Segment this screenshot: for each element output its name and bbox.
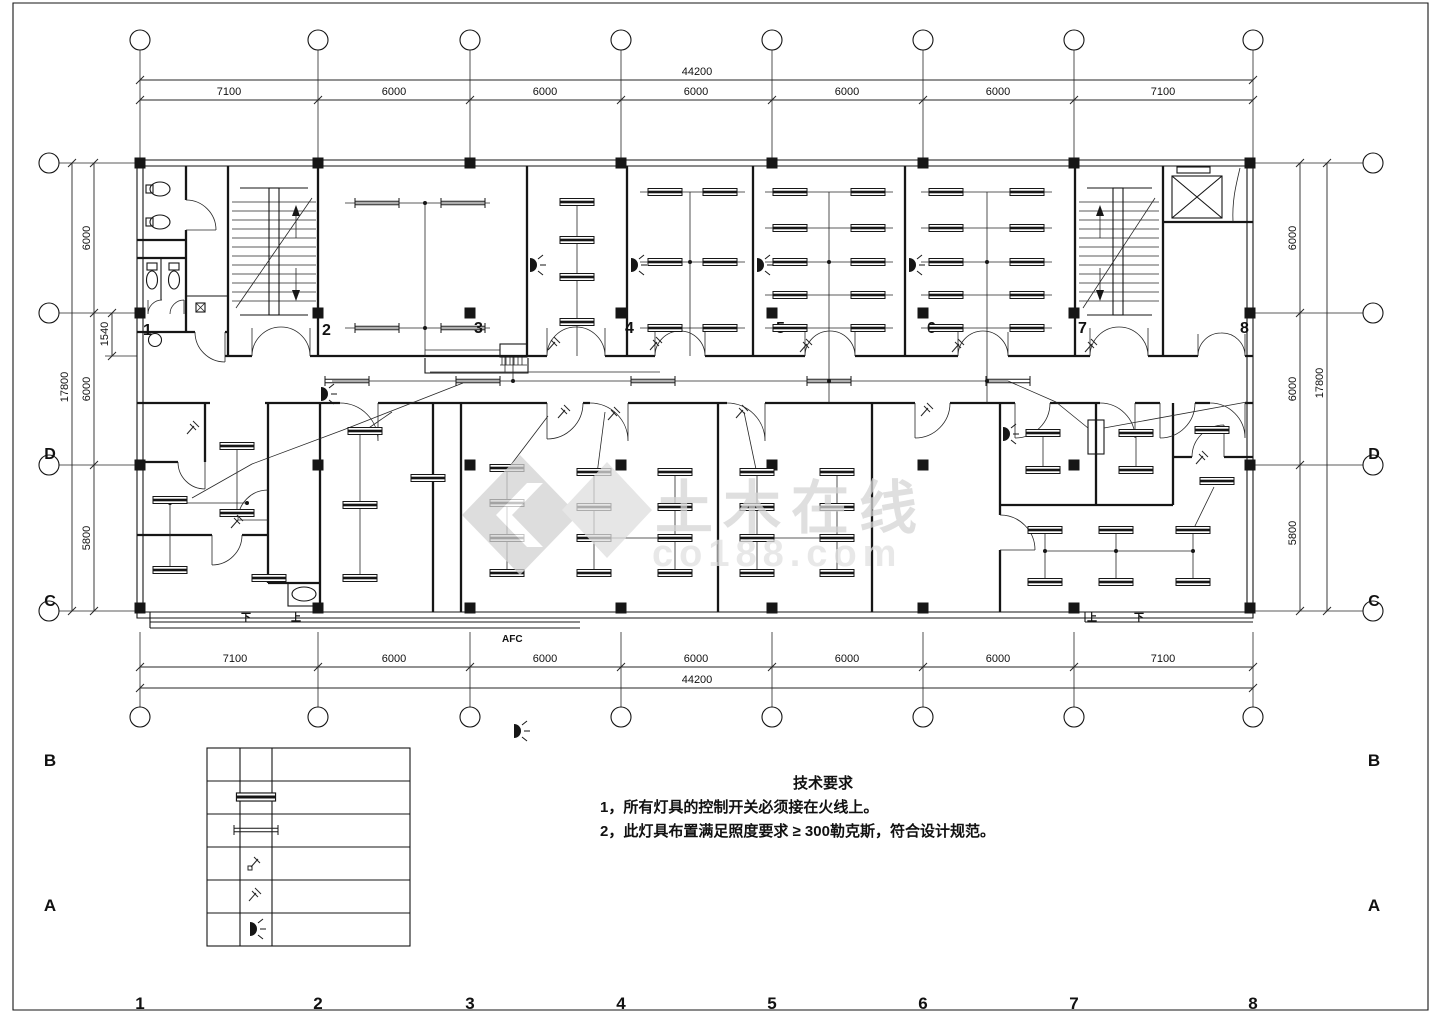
light-icon	[773, 189, 807, 196]
stair-up-label: 上	[291, 611, 301, 624]
axis-letter-c-right: C	[1368, 593, 1380, 610]
light-icon	[851, 325, 885, 332]
sheet-number: 1	[135, 994, 144, 1013]
grid-bubbles-right	[1363, 153, 1383, 621]
light-icon	[1010, 292, 1044, 299]
stair-down-label: 下	[1134, 612, 1144, 624]
distribution-board-icon	[500, 344, 527, 365]
sheet-letter: B	[44, 751, 56, 770]
dim-right-seg: 5800	[1287, 521, 1299, 545]
watermark: 土木在线 co188.com	[462, 455, 927, 575]
elevator-icon	[1163, 167, 1253, 222]
sheet-letter: A	[1368, 896, 1380, 915]
light-icon	[648, 189, 682, 196]
dim-bottom-seg: 6000	[986, 653, 1010, 665]
light-icon	[658, 469, 692, 476]
light-icon	[560, 237, 594, 244]
light-icon	[929, 225, 963, 232]
toilet-icon	[169, 263, 180, 289]
sheet-number: 3	[465, 994, 474, 1013]
axis-letter-d-right: D	[1368, 446, 1380, 463]
light-icon	[851, 189, 885, 196]
watermark-domain: co188.com	[652, 533, 902, 575]
panel-label: AFC	[502, 634, 523, 645]
notes-item-2: 2，此灯具布置满足照度要求 ≥ 300勒克斯，符合设计规范。	[600, 822, 995, 840]
wall-lamp-icon	[757, 255, 773, 275]
light-icon	[929, 189, 963, 196]
light-icon	[773, 259, 807, 266]
light-icon	[1119, 430, 1153, 437]
column-number: 8	[1240, 320, 1249, 337]
light-icon	[1028, 579, 1062, 586]
floor-drain-icon	[196, 303, 205, 312]
dim-left-total: 17800	[59, 372, 71, 403]
light-icon	[577, 570, 611, 577]
light-icon	[1010, 189, 1044, 196]
sheet-labels: B A B A 1 2 3 4 5 6 7 8	[44, 751, 1380, 1013]
light-icon	[1099, 527, 1133, 534]
dim-top-seg: 7100	[1151, 86, 1175, 98]
dim-bottom-seg: 7100	[1151, 653, 1175, 665]
grid-bubbles-top	[130, 30, 1263, 50]
light-icon	[1176, 579, 1210, 586]
light-icon	[560, 199, 594, 206]
double-tube-fluorescent-icon	[236, 793, 275, 801]
sheet-letter: A	[44, 896, 56, 915]
switch-icon	[921, 403, 933, 416]
urinal-icon	[146, 215, 170, 229]
light-icon	[1099, 579, 1133, 586]
drawing-sheet: 44200 7100 6000 6000 6000 6000 6000 7100…	[0, 0, 1440, 1020]
wall-lamp-icon	[321, 384, 337, 404]
light-icon	[773, 292, 807, 299]
axis-letter-c-left: C	[44, 593, 56, 610]
light-icon	[773, 325, 807, 332]
switch-icon	[558, 405, 570, 418]
wall-lamp-icon	[250, 919, 266, 939]
dim-top-total: 44200	[682, 66, 713, 78]
watermark-logo-icon	[462, 455, 652, 575]
light-icon	[1010, 259, 1044, 266]
single-pole-switch-icon	[248, 857, 260, 870]
sheet-number: 8	[1248, 994, 1257, 1013]
light-icon	[851, 292, 885, 299]
light-icon	[648, 325, 682, 332]
light-icon	[348, 428, 382, 435]
sheet-number: 7	[1069, 994, 1078, 1013]
light-icon	[820, 469, 854, 476]
light-icon	[1010, 325, 1044, 332]
dim-right-total: 17800	[1314, 368, 1326, 399]
light-icon	[703, 189, 737, 196]
dim-bottom-seg: 6000	[382, 653, 406, 665]
light-icon	[343, 575, 377, 582]
wall-lamp-icon	[514, 721, 530, 741]
dim-top-seg: 7100	[217, 86, 241, 98]
dim-left-seg: 5800	[81, 526, 93, 550]
dim-top-seg: 6000	[533, 86, 557, 98]
light-icon	[560, 319, 594, 326]
light-icon	[929, 259, 963, 266]
switch-icon	[1085, 339, 1097, 352]
column-number: 7	[1078, 320, 1087, 337]
technical-notes: 技术要求 1，所有灯具的控制开关必须接在火线上。 2，此灯具布置满足照度要求 ≥…	[600, 774, 995, 840]
dim-bottom-seg: 6000	[835, 653, 859, 665]
sheet-number: 2	[313, 994, 322, 1013]
toilet-fixtures	[146, 182, 205, 347]
dim-bottom-seg: 7100	[223, 653, 247, 665]
light-icon	[929, 325, 963, 332]
grid-bubbles-left	[39, 153, 59, 621]
notes-title: 技术要求	[793, 774, 854, 792]
switch-icon	[608, 407, 620, 420]
dim-left-seg: 6000	[81, 377, 93, 401]
light-icon	[851, 259, 885, 266]
light-icon	[220, 443, 254, 450]
light-icon	[851, 225, 885, 232]
light-icon	[648, 259, 682, 266]
stair-up-label: 上	[1087, 611, 1097, 624]
light-icon	[1026, 430, 1060, 437]
stair-down-label: 下	[241, 612, 251, 624]
dim-top-seg: 6000	[684, 86, 708, 98]
light-icon	[1026, 467, 1060, 474]
sheet-number: 5	[767, 994, 776, 1013]
dim-top-seg: 6000	[835, 86, 859, 98]
two-pole-switch-icon	[249, 888, 261, 901]
wall-lamp-icon	[530, 255, 546, 275]
sheet-number: 6	[918, 994, 927, 1013]
light-icon	[703, 325, 737, 332]
wall-lamp-icon	[1003, 424, 1019, 444]
light-icon	[703, 259, 737, 266]
light-icon	[153, 497, 187, 504]
sheet-letter: B	[1368, 751, 1380, 770]
light-icon	[153, 567, 187, 574]
axis-letter-d-left: D	[44, 446, 56, 463]
legend-table	[207, 748, 410, 946]
light-icon	[343, 502, 377, 509]
notes-item-1: 1，所有灯具的控制开关必须接在火线上。	[600, 798, 878, 816]
bottom-axis: 7100 6000 6000 6000 6000 6000 7100 44200…	[130, 632, 1263, 741]
urinal-icon	[146, 182, 170, 196]
single-tube-fluorescent-icon	[234, 825, 278, 835]
watermark-brand: 土木在线	[655, 476, 927, 541]
column-number: 4	[625, 320, 634, 337]
top-axis: 44200 7100 6000 6000 6000 6000 6000 7100	[130, 30, 1263, 160]
switch-icon	[1196, 451, 1208, 464]
light-icon	[1119, 467, 1153, 474]
light-icon	[1200, 478, 1234, 485]
toilet-icon	[147, 263, 158, 289]
column-number: 3	[474, 320, 483, 337]
light-icon	[929, 292, 963, 299]
wall-lamp-icon	[909, 255, 925, 275]
light-icon	[560, 274, 594, 281]
light-icon	[773, 225, 807, 232]
dim-right-seg: 6000	[1287, 377, 1299, 401]
stairs-left-icon	[232, 188, 316, 315]
switch-icon	[736, 405, 748, 418]
left-axis: 6000 6000 5800 17800 1540 D C	[39, 153, 137, 621]
column-number: 2	[322, 322, 331, 339]
light-icon	[1176, 527, 1210, 534]
wall-lamps	[321, 255, 1019, 444]
light-icon	[1028, 527, 1062, 534]
dim-bottom-seg: 6000	[684, 653, 708, 665]
sheet-number: 4	[616, 994, 626, 1013]
light-icon	[1010, 225, 1044, 232]
dim-bottom-seg: 6000	[533, 653, 557, 665]
light-icon	[411, 475, 445, 482]
column-number: 1	[143, 322, 152, 339]
wall-lamp-icon	[631, 255, 647, 275]
stairs-right-icon	[1079, 188, 1159, 315]
dim-top-seg: 6000	[986, 86, 1010, 98]
dim-bottom-total: 44200	[682, 674, 713, 686]
dim-right-seg: 6000	[1287, 226, 1299, 250]
light-icon	[1195, 427, 1229, 434]
light-icon	[740, 469, 774, 476]
switch-icon	[187, 421, 199, 434]
right-axis: 6000 6000 5800 17800 D C	[1253, 153, 1383, 621]
dim-top-seg: 6000	[382, 86, 406, 98]
lighting-floor-plan: 44200 7100 6000 6000 6000 6000 6000 7100…	[0, 0, 1440, 1020]
light-icon	[252, 575, 286, 582]
dim-left-seg: 6000	[81, 226, 93, 250]
grid-bubbles-bottom	[130, 707, 1263, 727]
dim-left-inner: 1540	[99, 322, 111, 346]
plan-grid-numbers: 1 2 3 4 5 6 7 8	[143, 320, 1249, 339]
